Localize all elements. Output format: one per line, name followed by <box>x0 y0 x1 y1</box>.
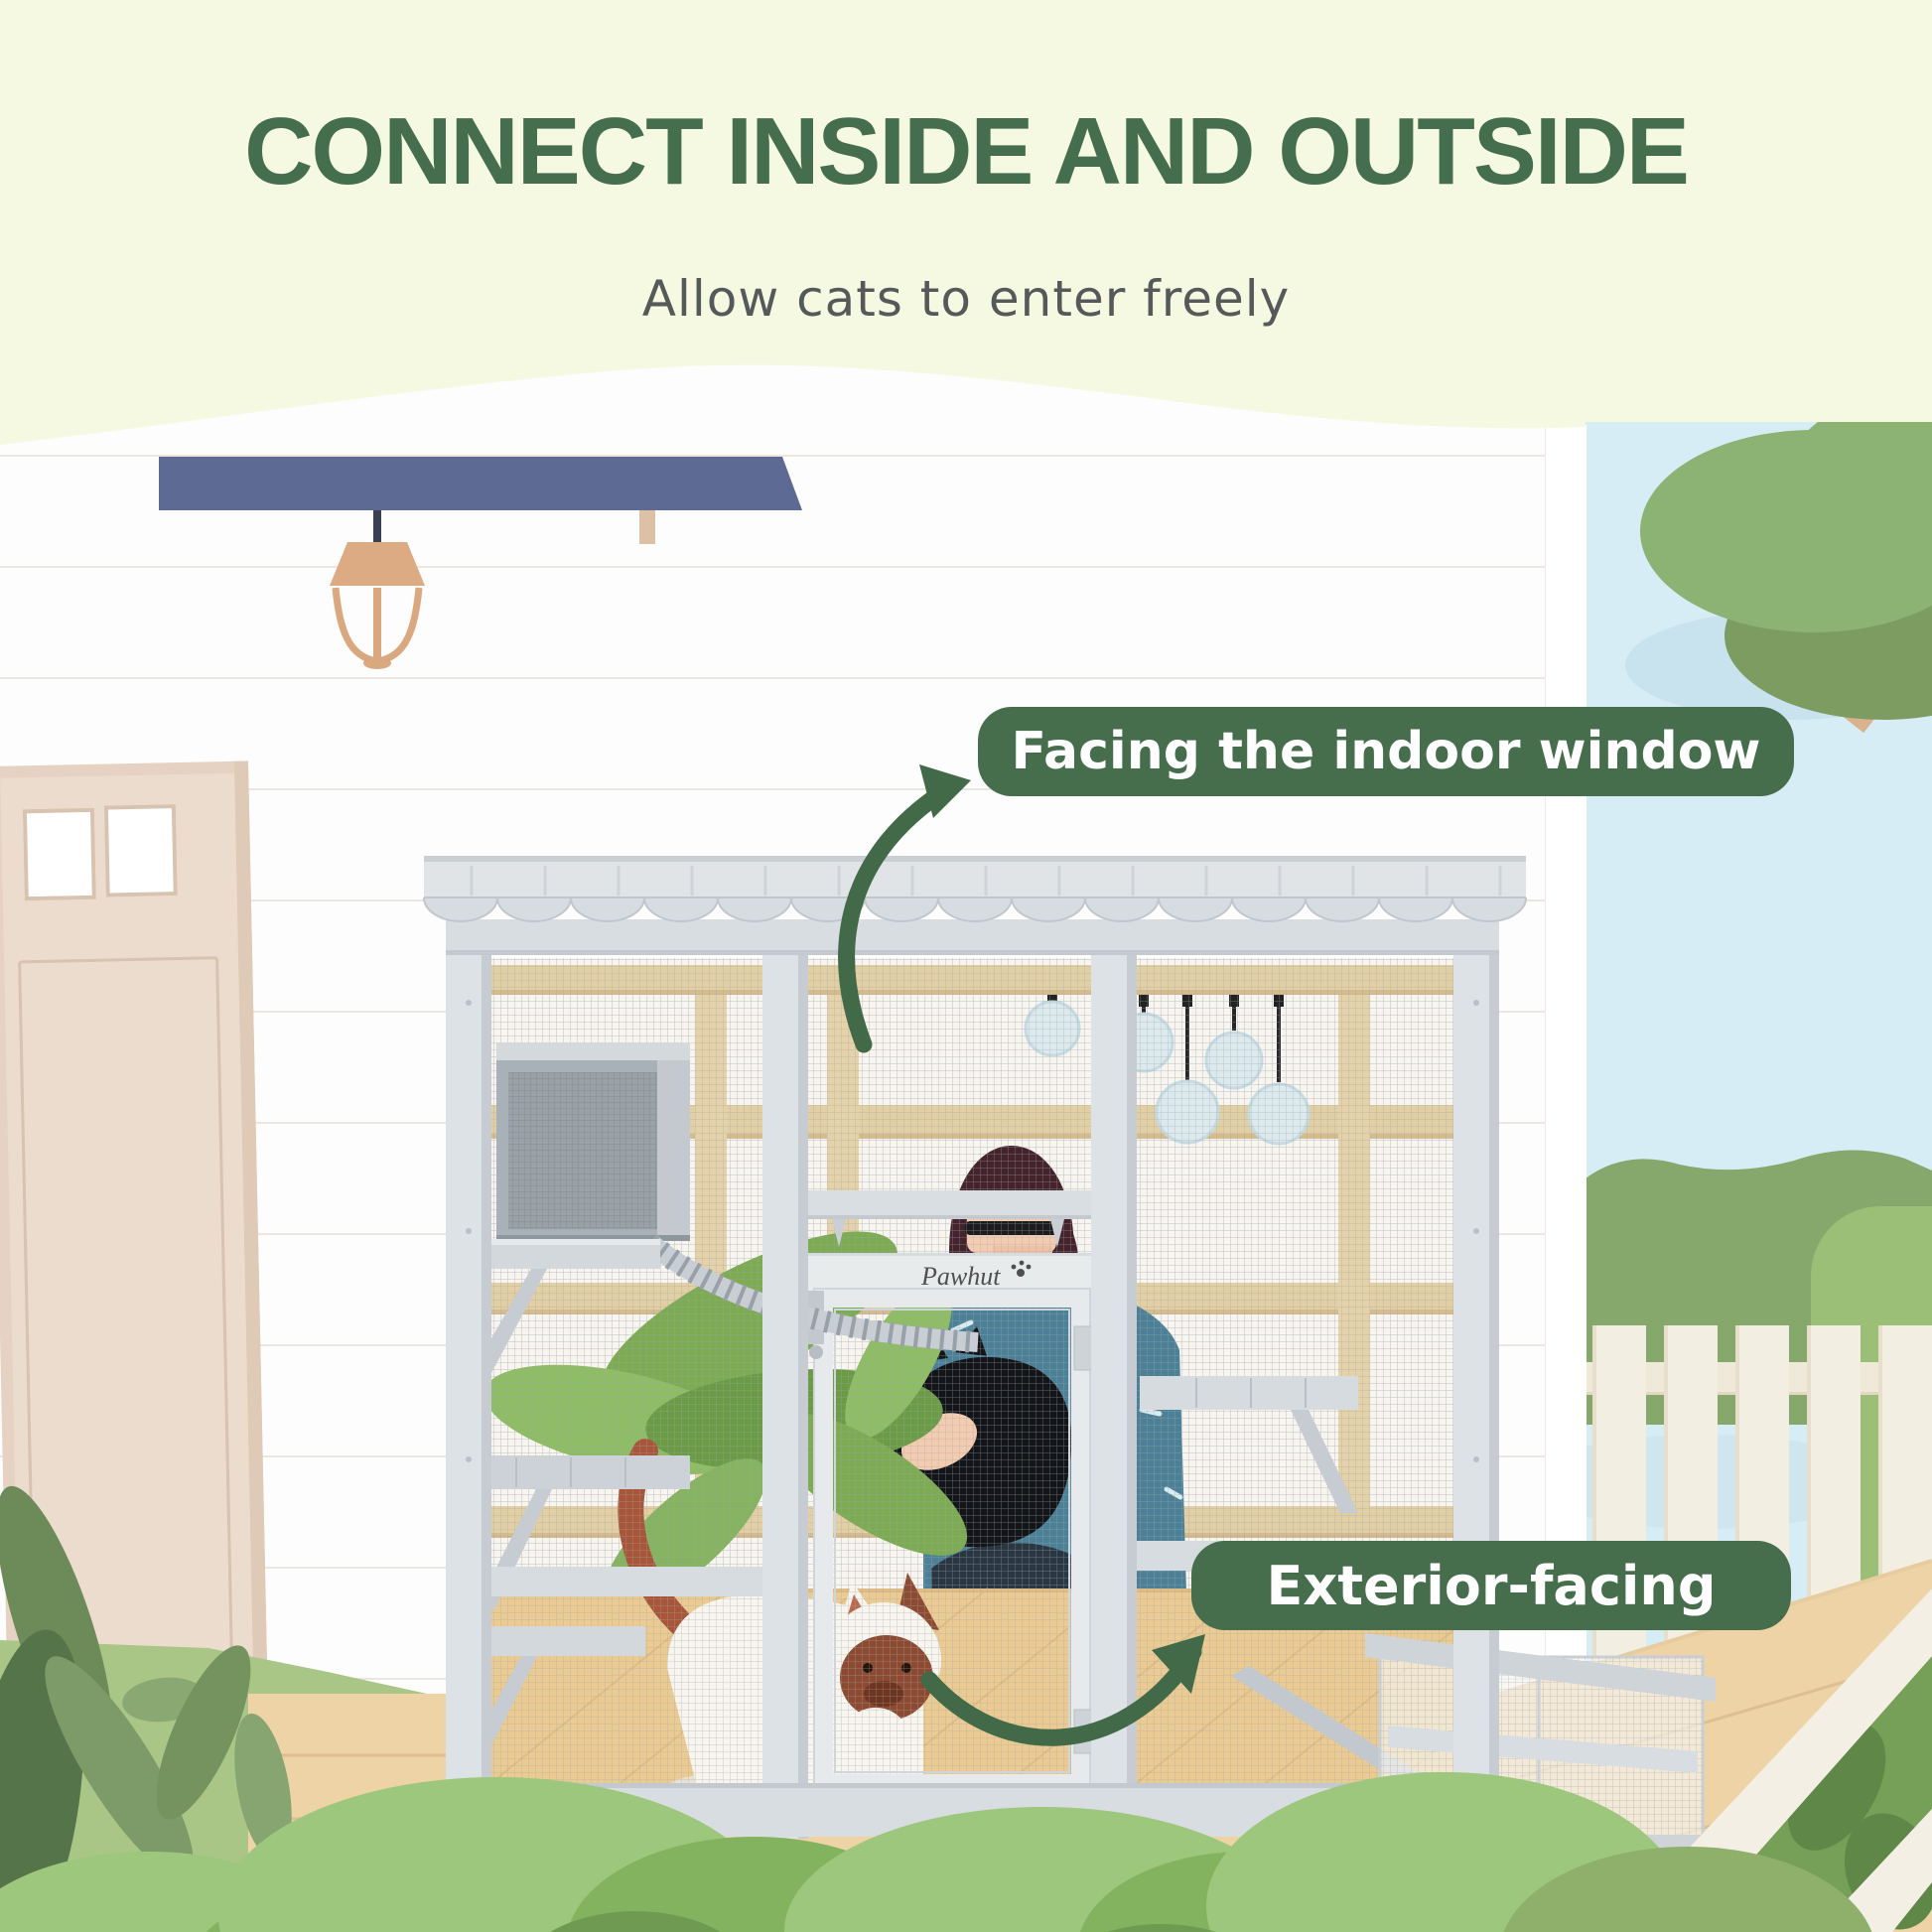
fence-picket <box>1878 1325 1932 1932</box>
page-subtitle: Allow cats to enter freely <box>0 270 1932 328</box>
door-hinge <box>1074 1710 1092 1753</box>
tree <box>1640 422 1932 733</box>
house-door <box>0 761 269 1759</box>
callout-indoor-window: Facing the indoor window <box>978 707 1794 796</box>
wall-corner <box>1545 425 1587 1708</box>
page-title: CONNECT INSIDE AND OUTSIDE <box>0 97 1932 207</box>
door-window <box>23 808 96 900</box>
callout-indoor-label: Facing the indoor window <box>1012 722 1761 781</box>
yard-sky <box>1586 422 1932 1932</box>
sky-wave <box>0 0 1586 467</box>
callout-exterior-facing: Exterior-facing <box>1191 1541 1791 1630</box>
door-panel <box>18 956 233 1679</box>
fence-picket <box>1807 1325 1861 1932</box>
callout-exterior-label: Exterior-facing <box>1267 1555 1717 1617</box>
poster: Pawhut <box>0 0 1932 1932</box>
door-window <box>104 804 178 897</box>
